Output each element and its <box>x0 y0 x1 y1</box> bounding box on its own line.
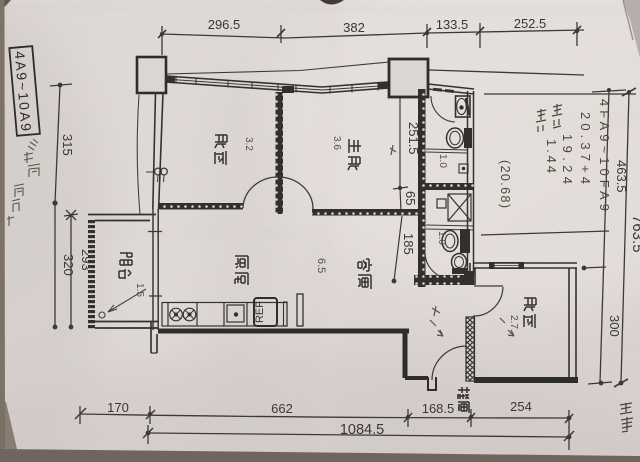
svg-text:133.5: 133.5 <box>436 17 469 32</box>
svg-text:3.6: 3.6 <box>331 136 342 150</box>
svg-text:1.5: 1.5 <box>134 283 145 297</box>
svg-text:65: 65 <box>403 191 418 205</box>
svg-text:REF: REF <box>254 301 266 323</box>
svg-text:382: 382 <box>343 20 365 35</box>
svg-text:3.2: 3.2 <box>243 137 254 151</box>
svg-text:168.5: 168.5 <box>422 401 455 416</box>
svg-text:1.0: 1.0 <box>437 154 448 168</box>
svg-text:170: 170 <box>107 400 129 415</box>
svg-text:1084.5: 1084.5 <box>340 422 384 438</box>
svg-text:2.7: 2.7 <box>508 315 519 329</box>
svg-text:320: 320 <box>61 254 76 276</box>
svg-text:6.5: 6.5 <box>315 258 327 273</box>
svg-text:(20.68): (20.68) <box>498 160 512 208</box>
svg-text:296.5: 296.5 <box>208 17 241 32</box>
svg-text:315: 315 <box>60 134 75 156</box>
svg-text:300: 300 <box>607 315 622 337</box>
svg-text:763.5: 763.5 <box>629 215 640 253</box>
svg-text:463.5: 463.5 <box>614 160 629 193</box>
svg-text:185: 185 <box>401 233 416 255</box>
svg-text:254: 254 <box>510 399 532 414</box>
svg-text:662: 662 <box>271 401 293 416</box>
svg-text:1.44: 1.44 <box>544 139 559 173</box>
svg-text:252.5: 252.5 <box>514 16 547 31</box>
svg-text:1.0: 1.0 <box>436 231 447 245</box>
